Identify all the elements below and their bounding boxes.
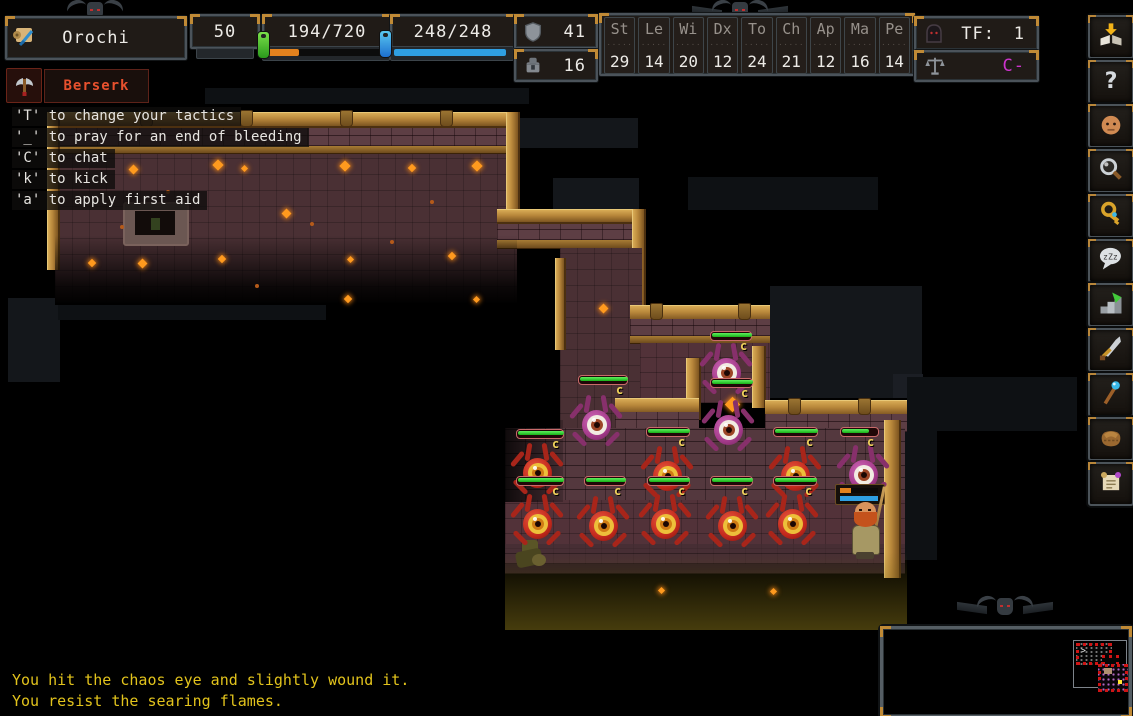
- hint-line: 'T' to change your tactics: [12, 107, 241, 126]
- hp-bar: [268, 49, 382, 56]
- sidebar-button-weapon[interactable]: [1088, 328, 1133, 372]
- monster-symbol: c: [616, 383, 623, 397]
- stat-value: 14: [644, 52, 663, 71]
- dv-panel: 41: [514, 14, 598, 49]
- monster-symbol: c: [741, 386, 748, 400]
- log-line: You resist the searing flames.: [8, 692, 287, 710]
- stat-cell-st: St·····29: [604, 17, 635, 74]
- sidebar-button-keys[interactable]: [1088, 194, 1133, 238]
- monster-symbol: c: [867, 435, 874, 449]
- stat-value: 24: [747, 52, 766, 71]
- monster-symbol: c: [552, 484, 559, 498]
- monster-symbol: c: [678, 484, 685, 498]
- chaos-eye-red[interactable]: [642, 497, 688, 549]
- stat-label: Pe: [885, 20, 903, 38]
- armor-icon: [522, 55, 544, 81]
- sidebar-button-character[interactable]: [1088, 104, 1133, 148]
- stat-label: Le: [645, 20, 663, 38]
- sidebar-button-message-log[interactable]: [1088, 15, 1133, 59]
- hp-potion-icon: [257, 31, 270, 59]
- weapon-icon: [1097, 334, 1125, 366]
- monster-symbol: c: [552, 437, 559, 451]
- sidebar-button-scroll[interactable]: [1088, 462, 1133, 506]
- stat-cell-wi: Wi·····20: [673, 17, 704, 74]
- chaos-eye-red[interactable]: [769, 497, 815, 549]
- minimap[interactable]: >: [880, 626, 1132, 716]
- level-value: 50: [192, 22, 258, 42]
- stat-value: 12: [816, 52, 835, 71]
- hp-value: 194/720: [264, 22, 390, 42]
- stat-cell-dx: Dx·····12: [707, 17, 738, 74]
- monster-symbol: c: [614, 484, 621, 498]
- alignment-value: C-: [1003, 56, 1025, 76]
- stat-label: St: [611, 20, 629, 38]
- pp-potion-icon: [379, 30, 392, 58]
- tf-panel: TF: 1: [914, 16, 1039, 51]
- minimap-room: [1098, 664, 1128, 692]
- level-panel: 50: [190, 14, 260, 49]
- stat-cell-ma: Ma·····16: [844, 17, 875, 74]
- stat-label: Ma: [851, 20, 869, 38]
- sidebar-button-look[interactable]: [1088, 149, 1133, 193]
- stat-cell-pe: Pe·····14: [879, 17, 910, 74]
- chaos-eye-purple[interactable]: [573, 398, 619, 450]
- tf-value: 1: [1014, 24, 1025, 44]
- sidebar-button-magic[interactable]: [1088, 373, 1133, 417]
- stat-value: 21: [782, 52, 801, 71]
- stat-label: Dx: [714, 20, 732, 38]
- pv-panel: 16: [514, 49, 598, 82]
- stat-label: Ap: [817, 20, 835, 38]
- stat-value: 16: [850, 52, 869, 71]
- stat-value: 20: [679, 52, 698, 71]
- svg-text:zZz: zZz: [1103, 251, 1118, 261]
- monster-symbol: c: [740, 339, 747, 353]
- stat-value: 29: [610, 52, 629, 71]
- tf-label: TF:: [961, 24, 995, 44]
- pp-bar: [394, 49, 506, 56]
- stat-label: Wi: [679, 20, 697, 38]
- stat-cell-to: To·····24: [741, 17, 772, 74]
- tactic-label: Berserk: [63, 78, 129, 94]
- inventory-icon: [1097, 423, 1125, 455]
- stats-panel: St·····29Le·····14Wi·····20Dx·····12To··…: [599, 13, 915, 76]
- magic-icon: [1097, 379, 1125, 411]
- pv-value: 16: [564, 56, 586, 76]
- sidebar-button-chat[interactable]: zZz: [1088, 239, 1133, 283]
- chaos-eye-purple[interactable]: [705, 403, 751, 455]
- stat-cell-ap: Ap·····12: [810, 17, 841, 74]
- level-shelf: [196, 48, 254, 59]
- hint-line: '_' to pray for an end of bleeding: [12, 128, 309, 147]
- chaos-eye-red[interactable]: [709, 499, 755, 551]
- monster-symbol: c: [806, 435, 813, 449]
- stat-label: Ch: [782, 20, 800, 38]
- sidebar-button-help[interactable]: ?: [1088, 60, 1133, 104]
- stat-value: 12: [713, 52, 732, 71]
- log-line: You hit the chaos eye and slightly wound…: [8, 671, 413, 689]
- chaos-eye-red[interactable]: [580, 499, 626, 551]
- player-character[interactable]: [842, 498, 890, 560]
- scroll-icon: [1097, 468, 1125, 500]
- sidebar-button-inventory[interactable]: [1088, 417, 1133, 461]
- chaos-eye-red[interactable]: [514, 497, 560, 549]
- gargoyle-ornament: [960, 596, 1050, 624]
- tactic-axe-icon: [6, 68, 42, 103]
- sidebar-button-descend-stairs[interactable]: [1088, 283, 1133, 327]
- monster-symbol: c: [805, 484, 812, 498]
- chat-icon: zZz: [1097, 245, 1125, 277]
- hint-line: 'a' to apply first aid: [12, 191, 207, 210]
- hp-panel: 194/720: [262, 14, 392, 49]
- shield-icon: [522, 20, 544, 48]
- help-icon: ?: [1097, 66, 1125, 98]
- dv-value: 41: [564, 22, 586, 42]
- pp-panel: 248/248: [390, 14, 516, 49]
- monster-symbol: c: [741, 484, 748, 498]
- game-screen: ★cccccccccccc Orochi 50 194/720 248/248 …: [0, 0, 1133, 716]
- keys-icon: [1097, 200, 1125, 232]
- monster-symbol: c: [678, 435, 685, 449]
- look-icon: [1097, 155, 1125, 187]
- alignment-panel: C-: [914, 50, 1039, 82]
- hint-line: 'k' to kick: [12, 170, 115, 189]
- scales-icon: [923, 55, 947, 81]
- svg-text:?: ?: [1105, 68, 1118, 94]
- hood-icon: [922, 21, 946, 49]
- message-log-icon: [1097, 21, 1125, 53]
- descend-stairs-icon: [1097, 289, 1125, 321]
- stat-cell-le: Le·····14: [638, 17, 669, 74]
- stat-value: 14: [885, 52, 904, 71]
- character-name: Orochi: [7, 28, 185, 48]
- character-icon: [1097, 110, 1125, 142]
- stat-label: To: [748, 20, 766, 38]
- minimap-player-dot: [1118, 680, 1122, 684]
- stat-cell-ch: Ch·····21: [776, 17, 807, 74]
- tactic-button[interactable]: Berserk: [44, 69, 149, 103]
- hint-line: 'C' to chat: [12, 149, 115, 168]
- character-name-panel: Orochi: [5, 16, 187, 60]
- pp-value: 248/248: [392, 22, 514, 42]
